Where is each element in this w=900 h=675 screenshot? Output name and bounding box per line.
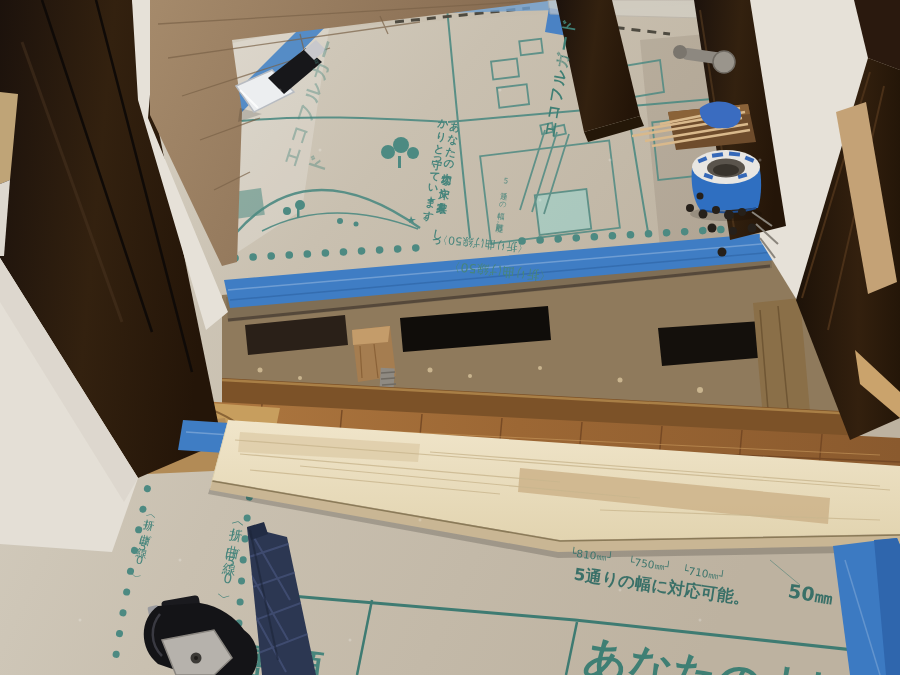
renovation-photo: あなたの大切な床 整頓 — [0, 0, 900, 675]
joist-end-right — [753, 298, 810, 418]
scene-canvas: あなたの大切な床 整頓 — [0, 0, 900, 675]
